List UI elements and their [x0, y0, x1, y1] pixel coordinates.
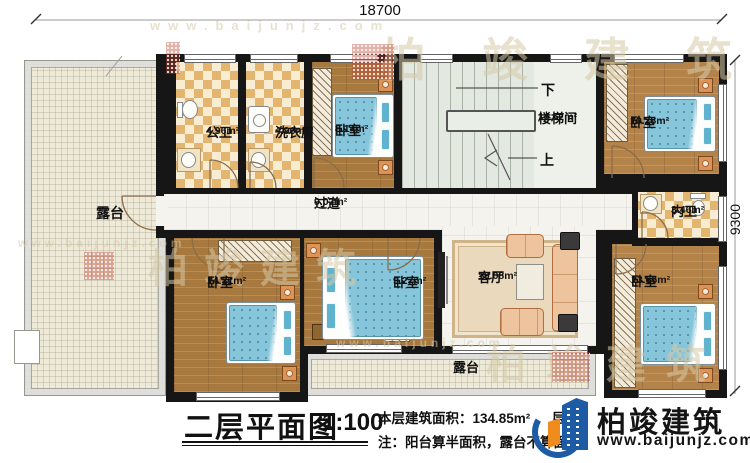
dimension-top: 18700	[338, 2, 422, 19]
stair-down-label: 下	[541, 80, 555, 100]
room-area: 13.66m²	[631, 275, 670, 287]
room-area: 4.96m²	[206, 126, 239, 138]
dimension-right: 9300	[727, 204, 743, 235]
floor-plan: 柏竣建筑 www.baijunjz.com 柏竣建筑 www.baijunjz.…	[0, 0, 750, 463]
plan-scale: 1:100	[322, 409, 383, 437]
room-name: 露台	[453, 361, 479, 376]
room-area: 8.14m²	[335, 124, 368, 136]
room-name: 露台	[96, 206, 124, 222]
logo-orange-shape	[548, 418, 560, 448]
room-area: 14.31m²	[207, 276, 246, 288]
stair-up-label: 上	[540, 150, 554, 170]
room-area: 19.08m²	[478, 271, 517, 283]
room-area: 9.07m²	[314, 197, 347, 209]
title-underline	[182, 441, 368, 443]
door-arc-layer	[0, 0, 750, 463]
plan-title: 二层平面图	[184, 404, 339, 446]
building-area-text: 本层建筑面积：134.85m²	[378, 411, 530, 426]
room-area: 10.28m²	[630, 116, 669, 128]
title-underline	[182, 445, 368, 446]
room-area: 9.27m²	[393, 276, 426, 288]
room-area: 3.46m²	[671, 205, 704, 217]
logo-building-shape	[562, 398, 588, 450]
room-area: 4.96m²	[275, 126, 308, 138]
room-area: 14.57m²	[538, 112, 577, 124]
company-logo-icon	[536, 396, 596, 462]
company-website: www.baijunjz.com	[597, 432, 750, 450]
